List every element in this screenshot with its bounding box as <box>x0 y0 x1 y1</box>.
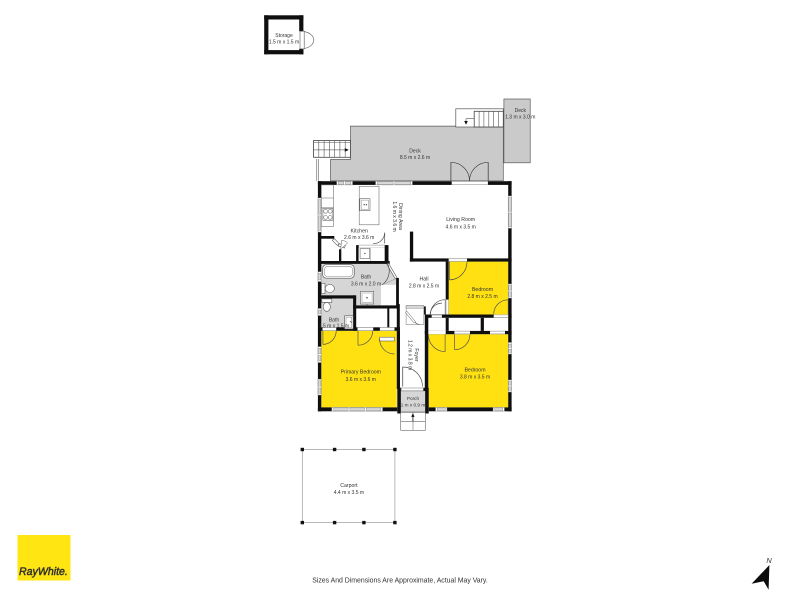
svg-text:3.6 m x 3.6 m: 3.6 m x 3.6 m <box>346 377 376 383</box>
svg-text:Bedroom: Bedroom <box>464 367 485 373</box>
svg-text:Sizes And Dimensions Are Appro: Sizes And Dimensions Are Approximate, Ac… <box>312 577 488 584</box>
svg-text:1 m x 0.9 m: 1 m x 0.9 m <box>401 402 426 407</box>
svg-text:2.6 m x 3.6 m: 2.6 m x 3.6 m <box>344 235 374 241</box>
svg-text:4.6 m x 3.5 m: 4.6 m x 3.5 m <box>446 225 476 231</box>
svg-text:3.6 m x 2.0 m: 3.6 m x 2.0 m <box>351 282 381 288</box>
svg-text:Foyer: Foyer <box>413 348 419 362</box>
svg-text:1.2 m x 3.8 m: 1.2 m x 3.8 m <box>407 340 413 370</box>
svg-text:Bath: Bath <box>361 275 372 281</box>
svg-text:Bath: Bath <box>329 318 340 324</box>
svg-text:N: N <box>766 556 772 565</box>
svg-text:1.3 m x 3.0 m: 1.3 m x 3.0 m <box>505 114 535 120</box>
svg-text:4.4 m x 3.5 m: 4.4 m x 3.5 m <box>334 490 364 496</box>
svg-text:Deck: Deck <box>409 148 421 154</box>
svg-text:1.5 m x 1.5 m: 1.5 m x 1.5 m <box>269 40 299 46</box>
svg-text:Carport: Carport <box>340 483 358 489</box>
svg-text:RayWhite.: RayWhite. <box>19 566 68 578</box>
svg-text:1.5 m x 1.5 m: 1.5 m x 1.5 m <box>319 324 349 330</box>
svg-text:Storage: Storage <box>275 33 293 39</box>
svg-text:Deck: Deck <box>515 108 527 114</box>
svg-text:Primary Bedroom: Primary Bedroom <box>341 370 381 376</box>
svg-text:Living Room: Living Room <box>446 217 475 223</box>
svg-text:Porch: Porch <box>407 396 420 401</box>
svg-text:8.5 m x 2.6 m: 8.5 m x 2.6 m <box>400 155 430 161</box>
svg-text:Hall: Hall <box>420 277 429 283</box>
svg-text:2.8 m x 2.5 m: 2.8 m x 2.5 m <box>467 294 497 300</box>
svg-text:1.6 m x 3.6 m: 1.6 m x 3.6 m <box>391 201 397 231</box>
svg-text:Kitchen: Kitchen <box>351 228 368 234</box>
svg-text:2.8 m x 2.5 m: 2.8 m x 2.5 m <box>409 283 439 289</box>
svg-text:3.8 m x 3.5 m: 3.8 m x 3.5 m <box>460 375 490 381</box>
svg-text:Bedroom: Bedroom <box>472 287 493 293</box>
